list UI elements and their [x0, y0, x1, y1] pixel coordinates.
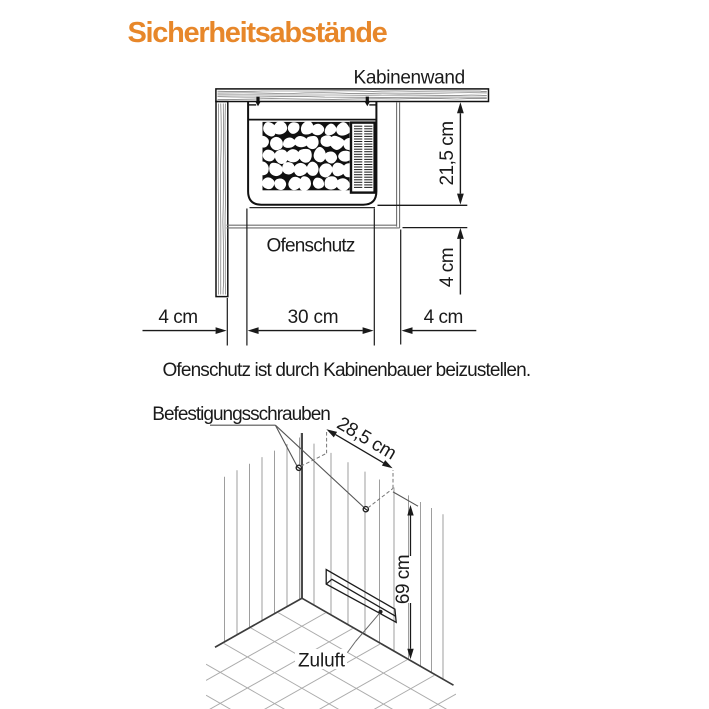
svg-text:4 cm: 4 cm: [424, 307, 463, 328]
svg-text:4 cm: 4 cm: [158, 307, 197, 328]
svg-text:69 cm: 69 cm: [393, 555, 414, 604]
svg-text:Befestigungsschrauben: Befestigungsschrauben: [152, 404, 330, 425]
svg-text:Ofenschutz ist durch Kabinenba: Ofenschutz ist durch Kabinenbauer beizus…: [163, 360, 531, 381]
svg-text:Kabinenwand: Kabinenwand: [354, 68, 465, 89]
svg-text:4 cm: 4 cm: [437, 248, 458, 287]
svg-text:30 cm: 30 cm: [288, 307, 339, 328]
svg-text:Ofenschutz: Ofenschutz: [267, 236, 355, 257]
svg-text:21,5 cm: 21,5 cm: [437, 121, 458, 185]
svg-text:Zuluft: Zuluft: [298, 650, 346, 671]
svg-text:Sicherheitsabstände: Sicherheitsabstände: [128, 17, 388, 49]
